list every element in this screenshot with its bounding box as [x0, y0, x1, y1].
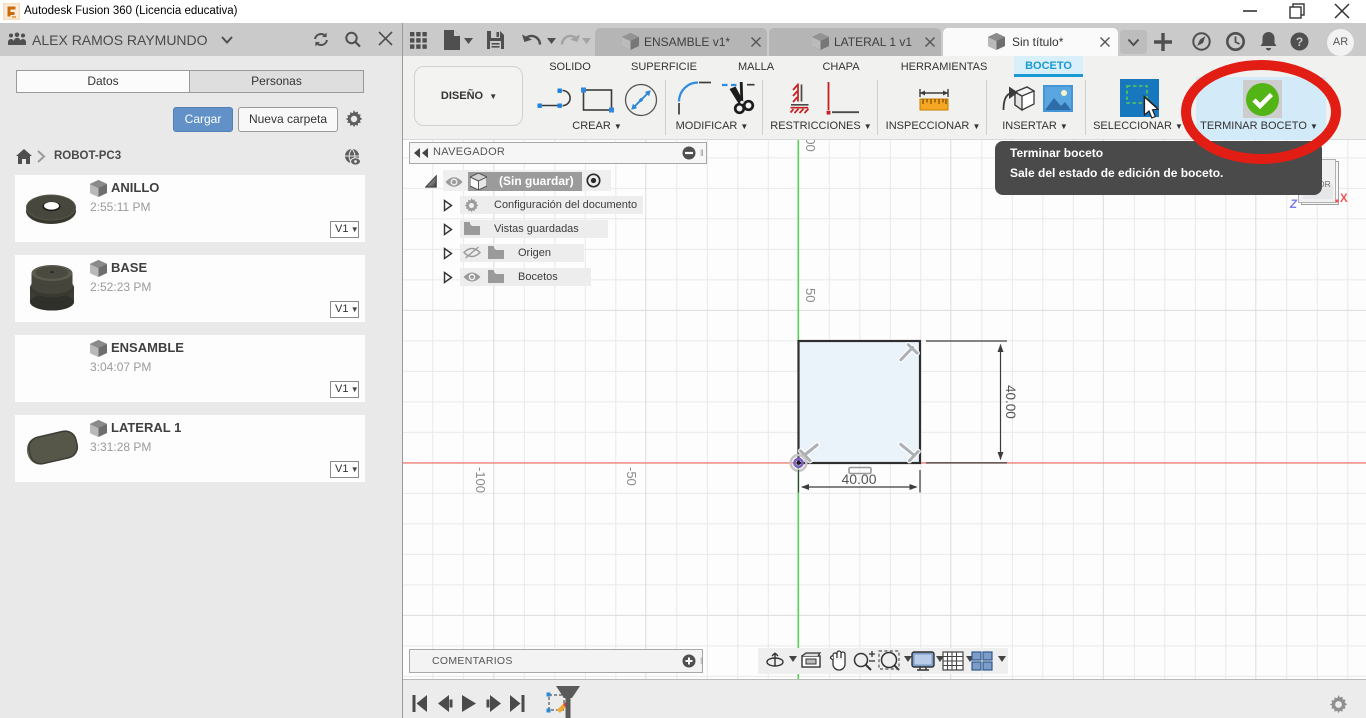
svg-text:-50: -50: [624, 467, 639, 486]
svg-text:?: ?: [1296, 35, 1303, 49]
svg-text:50: 50: [803, 288, 818, 302]
svg-text:-100: -100: [473, 467, 488, 493]
svg-text:100: 100: [803, 140, 818, 152]
svg-text:40.00: 40.00: [841, 471, 876, 487]
svg-text:40.00: 40.00: [1003, 385, 1018, 419]
